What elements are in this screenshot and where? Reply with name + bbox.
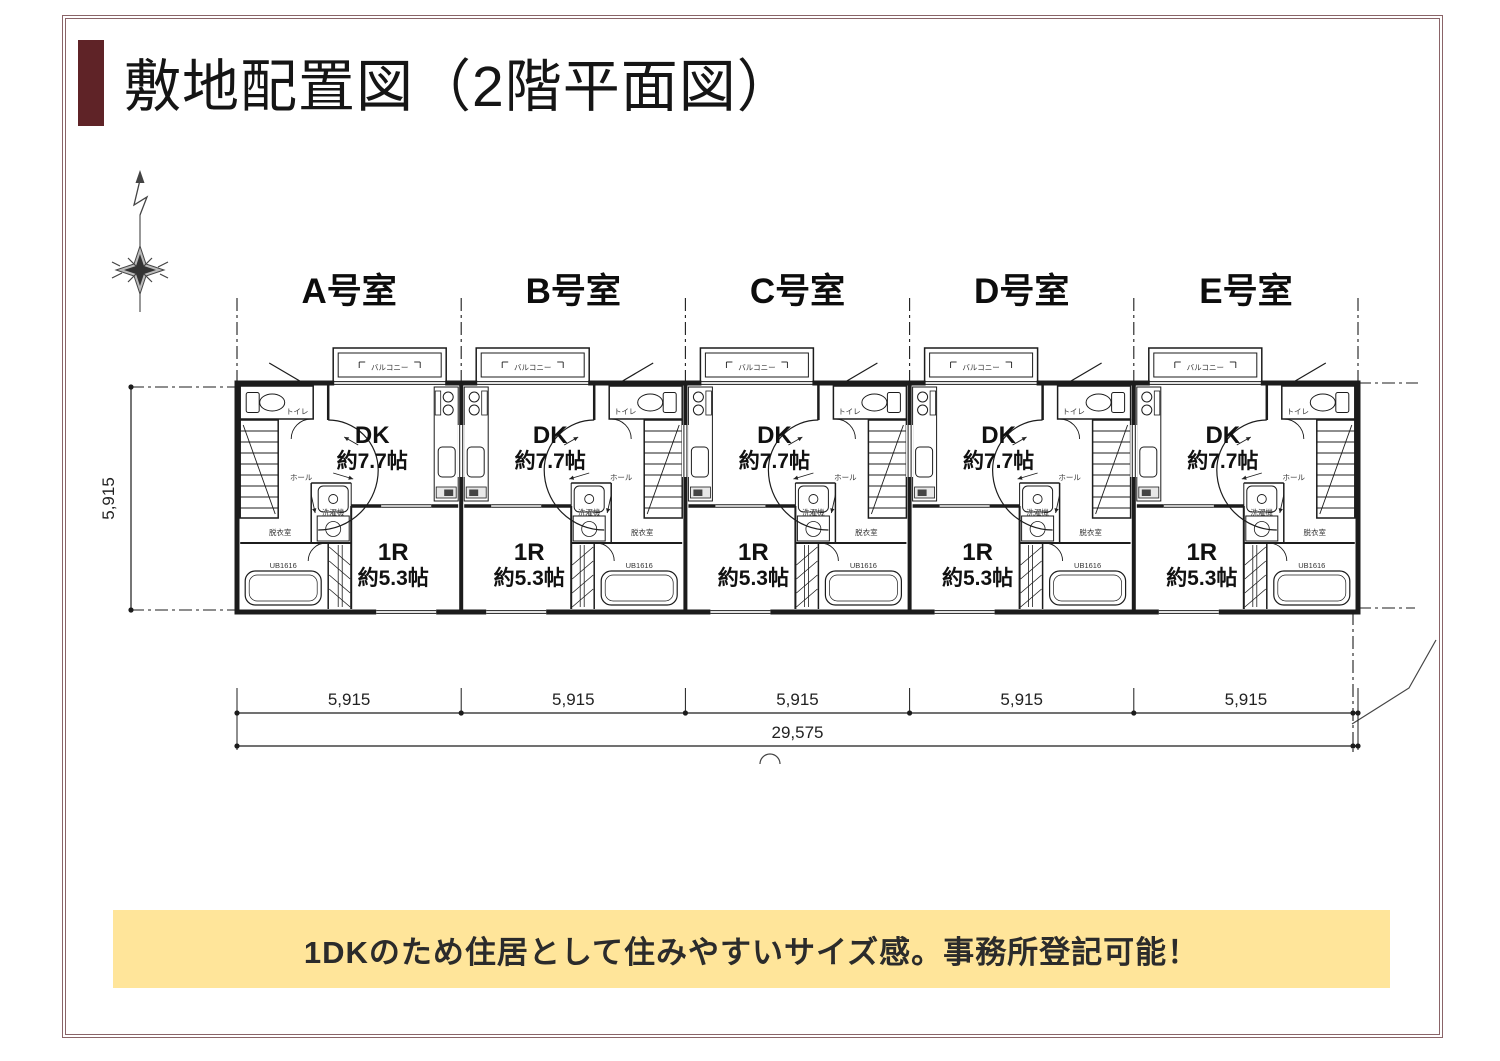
svg-text:1R: 1R: [738, 539, 769, 566]
dim-unit-width: 5,915: [1000, 690, 1043, 709]
svg-text:1R: 1R: [1186, 539, 1217, 566]
bathtub: [245, 571, 321, 605]
svg-text:約5.3帖: 約5.3帖: [1166, 566, 1237, 590]
unit-label-D: D号室: [974, 271, 1069, 311]
dim-unit-width: 5,915: [328, 690, 371, 709]
svg-text:トイレ: トイレ: [838, 407, 861, 416]
svg-text:バルコニー: バルコニー: [514, 363, 551, 372]
svg-text:約5.3帖: 約5.3帖: [494, 566, 565, 590]
svg-text:約5.3帖: 約5.3帖: [942, 566, 1013, 590]
svg-text:UB1616: UB1616: [1074, 561, 1101, 570]
svg-text:1R: 1R: [514, 539, 545, 566]
svg-text:ホール: ホール: [1283, 473, 1306, 482]
svg-text:約7.7帖: 約7.7帖: [337, 449, 408, 473]
svg-text:約7.7帖: 約7.7帖: [1187, 449, 1258, 473]
svg-text:トイレ: トイレ: [286, 407, 309, 416]
svg-text:脱衣室: 脱衣室: [631, 527, 654, 537]
svg-text:UB1616: UB1616: [1298, 561, 1325, 570]
svg-text:洗濯機: 洗濯機: [1026, 507, 1049, 517]
svg-text:DK: DK: [981, 422, 1016, 449]
svg-text:UB1616: UB1616: [270, 561, 297, 570]
svg-text:洗濯機: 洗濯機: [322, 507, 345, 517]
unit-label-A: A号室: [301, 271, 396, 311]
dim-unit-width: 5,915: [552, 690, 595, 709]
svg-text:脱衣室: 脱衣室: [855, 527, 878, 537]
svg-text:1R: 1R: [378, 539, 409, 566]
svg-text:約5.3帖: 約5.3帖: [358, 566, 429, 590]
svg-text:洗濯機: 洗濯機: [578, 507, 601, 517]
svg-text:1R: 1R: [962, 539, 993, 566]
dim-depth: 5,915: [99, 477, 118, 520]
page-title: 敷地配置図（2階平面図）: [124, 34, 795, 130]
unit-plan-A: A号室DK約7.7帖1R約5.3帖バルコニーホール脱衣室トイレ洗濯機UB1616: [240, 271, 465, 615]
svg-text:ホール: ホール: [834, 473, 857, 482]
bathtub: [601, 571, 677, 605]
bathtub: [825, 571, 901, 605]
svg-text:トイレ: トイレ: [614, 407, 637, 416]
unit-plans: A号室DK約7.7帖1R約5.3帖バルコニーホール脱衣室トイレ洗濯機UB1616…: [240, 271, 1355, 615]
kitchen-counter: [464, 387, 488, 501]
svg-text:DK: DK: [355, 422, 390, 449]
svg-text:約7.7帖: 約7.7帖: [963, 449, 1034, 473]
svg-text:DK: DK: [533, 422, 568, 449]
unit-plan-B: B号室DK約7.7帖1R約5.3帖バルコニーホール脱衣室トイレ洗濯機UB1616: [458, 271, 683, 615]
bathtub: [1274, 571, 1350, 605]
floor-plan-drawing: A号室DK約7.7帖1R約5.3帖バルコニーホール脱衣室トイレ洗濯機UB1616…: [62, 140, 1442, 860]
kitchen-counter: [434, 387, 458, 501]
svg-text:バルコニー: バルコニー: [371, 363, 408, 372]
unit-plan-D: D号室DK約7.7帖1R約5.3帖バルコニーホール脱衣室トイレ洗濯機UB1616: [906, 271, 1131, 615]
dim-unit-width: 5,915: [776, 690, 819, 709]
svg-text:脱衣室: 脱衣室: [1079, 527, 1102, 537]
svg-text:約5.3帖: 約5.3帖: [718, 566, 789, 590]
svg-text:UB1616: UB1616: [626, 561, 653, 570]
svg-text:脱衣室: 脱衣室: [1304, 527, 1327, 537]
kitchen-counter: [1137, 387, 1161, 501]
unit-label-B: B号室: [526, 271, 621, 311]
svg-text:バルコニー: バルコニー: [962, 363, 999, 372]
svg-text:トイレ: トイレ: [1062, 407, 1085, 416]
north-arrow-icon: [112, 170, 168, 312]
slide-page: { "colors":{"accent":"#5F2327","frame":"…: [0, 0, 1500, 1061]
dim-unit-width: 5,915: [1225, 690, 1268, 709]
svg-text:バルコニー: バルコニー: [1187, 363, 1224, 372]
svg-text:洗濯機: 洗濯機: [802, 507, 825, 517]
kitchen-counter: [913, 387, 937, 501]
dim-total-width: 29,575: [772, 723, 824, 742]
svg-text:ホール: ホール: [610, 473, 633, 482]
unit-label-E: E号室: [1199, 271, 1292, 311]
highlight-banner: 1DKのため住居として住みやすいサイズ感。事務所登記可能！: [113, 910, 1390, 988]
svg-text:バルコニー: バルコニー: [738, 363, 775, 372]
title-accent-bar: [78, 40, 104, 126]
bathtub: [1050, 571, 1126, 605]
svg-text:トイレ: トイレ: [1287, 407, 1310, 416]
svg-text:脱衣室: 脱衣室: [269, 527, 292, 537]
unit-label-C: C号室: [750, 271, 845, 311]
svg-text:ホール: ホール: [290, 473, 313, 482]
svg-text:UB1616: UB1616: [850, 561, 877, 570]
svg-text:洗濯機: 洗濯機: [1251, 507, 1274, 517]
svg-text:DK: DK: [1205, 422, 1240, 449]
svg-text:ホール: ホール: [1058, 473, 1081, 482]
svg-text:DK: DK: [757, 422, 792, 449]
svg-text:約7.7帖: 約7.7帖: [739, 449, 810, 473]
unit-plan-E: E号室DK約7.7帖1R約5.3帖バルコニーホール脱衣室トイレ洗濯機UB1616: [1130, 271, 1355, 615]
unit-plan-C: C号室DK約7.7帖1R約5.3帖バルコニーホール脱衣室トイレ洗濯機UB1616: [682, 271, 907, 615]
kitchen-counter: [688, 387, 712, 501]
site-boundary-line: [1352, 640, 1436, 724]
svg-text:約7.7帖: 約7.7帖: [515, 449, 586, 473]
